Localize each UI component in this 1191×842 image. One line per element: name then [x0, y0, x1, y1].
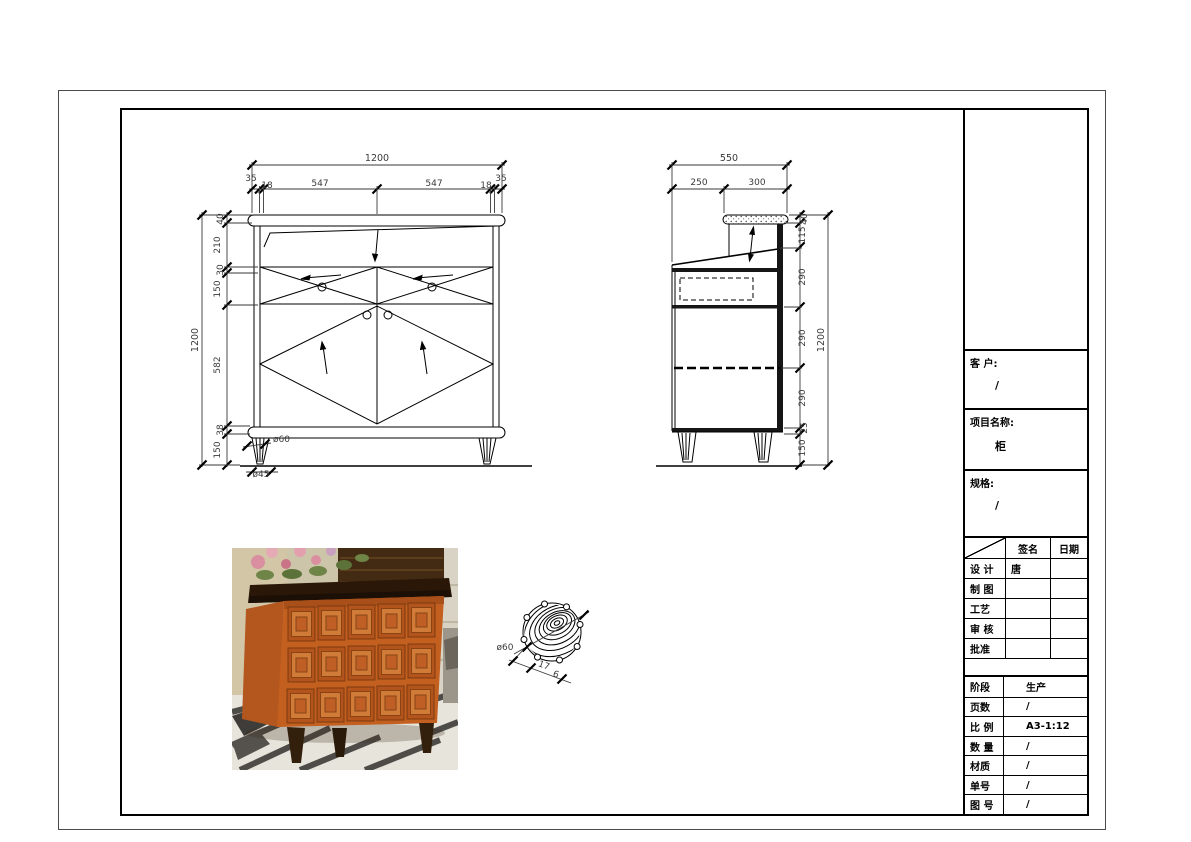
- customer-value: /: [965, 370, 1087, 392]
- dim-label: 210: [213, 236, 223, 253]
- dim-leg-top-dia: ø60: [273, 435, 290, 445]
- col-sign-header: 签名: [1005, 538, 1050, 558]
- door-arrow-right: [423, 346, 427, 374]
- row-review-sign: [1005, 618, 1050, 638]
- title-block: 客 户: / 项目名称: 柜 规格: / 签名 日期 设 计 唐 制 图 工艺 …: [963, 108, 1089, 816]
- dim-side-height: 1200: [816, 328, 827, 352]
- stage-label: 阶段: [965, 677, 1003, 697]
- row-draft-label: 制 图: [965, 578, 1005, 598]
- order-no-value: /: [1003, 775, 1089, 795]
- side-dimensions: 550 250 300 40 115 290 290 290 25 150 12…: [668, 153, 833, 470]
- dim-label: 150: [213, 441, 223, 458]
- dim-detail-dia: ø60: [497, 643, 514, 653]
- dim-label: 290: [798, 389, 808, 406]
- door-arrow-left: [323, 346, 327, 374]
- dim-label: 115: [798, 226, 808, 243]
- dim-label: 290: [798, 268, 808, 285]
- side-section: [656, 215, 802, 466]
- scale-value: A3-1:12: [1003, 716, 1089, 736]
- title-block-gap: [965, 658, 1087, 675]
- dim-label: 35: [245, 174, 256, 184]
- door-knob-left: [363, 311, 371, 319]
- dim-label: 18: [261, 181, 273, 191]
- scale-label: 比 例: [965, 716, 1003, 736]
- dim-side-depth: 550: [720, 153, 738, 164]
- row-draft-sign: [1005, 578, 1050, 598]
- quantity-label: 数 量: [965, 736, 1003, 756]
- dim-label: 6: [551, 669, 560, 680]
- row-approve-date: [1050, 638, 1087, 658]
- open-lid-line: [264, 226, 497, 247]
- drawing-no-value: /: [1003, 794, 1089, 814]
- grain-detail: ø60 17 6: [495, 573, 620, 689]
- col-date-header: 日期: [1050, 538, 1087, 558]
- material-value: /: [1003, 755, 1089, 775]
- row-craft-sign: [1005, 598, 1050, 618]
- drawing-sheet: { "title_block": { "customer": {"label":…: [0, 0, 1191, 842]
- spec-section: 规格: /: [965, 469, 1087, 536]
- dim-label: 547: [311, 179, 328, 189]
- row-approve-label: 批准: [965, 638, 1005, 658]
- drawing-no-label: 图 号: [965, 794, 1003, 814]
- hidden-drawer-box: [680, 278, 753, 300]
- pages-label: 页数: [965, 697, 1003, 717]
- dim-front-height: 1200: [190, 328, 201, 352]
- dim-label: 547: [425, 179, 442, 189]
- row-craft-label: 工艺: [965, 598, 1005, 618]
- cabinet-panels: [287, 603, 435, 723]
- row-craft-date: [1050, 598, 1087, 618]
- dim-front-width: 1200: [365, 153, 389, 164]
- door-knob-right: [384, 311, 392, 319]
- stage-value: 生产: [1003, 677, 1089, 697]
- spec-label: 规格:: [965, 471, 1087, 490]
- dim-label: 582: [213, 356, 223, 373]
- row-design-label: 设 计: [965, 558, 1005, 578]
- dim-label: 38: [216, 424, 226, 436]
- dim-label: 25: [800, 422, 810, 433]
- pages-value: /: [1003, 697, 1089, 717]
- diagonal-cell: [965, 538, 1005, 558]
- dim-label: 300: [748, 178, 765, 188]
- front-elevation: [240, 215, 532, 466]
- lid-arrow: [376, 230, 379, 258]
- row-approve-sign: [1005, 638, 1050, 658]
- dim-label: 40: [800, 213, 810, 225]
- quantity-value: /: [1003, 736, 1089, 756]
- order-no-label: 单号: [965, 775, 1003, 795]
- customer-label: 客 户:: [965, 351, 1087, 370]
- side-leg-front: [678, 432, 696, 462]
- dim-label: 40: [216, 213, 226, 225]
- front-dimensions: 1200 35 18 547 547 18 35 40 210 30 150 5…: [190, 153, 507, 480]
- dim-label: 18: [480, 181, 492, 191]
- dim-label: 250: [690, 178, 707, 188]
- row-review-label: 审 核: [965, 618, 1005, 638]
- project-value: 柜: [965, 429, 1087, 454]
- dim-label: 150: [798, 439, 808, 456]
- dim-leg-bottom-dia: ø45: [253, 470, 270, 480]
- customer-section: 客 户: /: [965, 349, 1087, 408]
- row-review-date: [1050, 618, 1087, 638]
- side-leg-back: [754, 432, 772, 462]
- material-label: 材质: [965, 755, 1003, 775]
- dim-label: 30: [216, 264, 226, 276]
- cabinet-side: [242, 601, 284, 727]
- project-section: 项目名称: 柜: [965, 408, 1087, 469]
- row-draft-date: [1050, 578, 1087, 598]
- product-photo: [232, 545, 458, 770]
- dim-label: 150: [213, 280, 223, 297]
- project-label: 项目名称:: [965, 410, 1087, 429]
- spec-value: /: [965, 490, 1087, 512]
- row-design-sign: 唐: [1005, 558, 1050, 578]
- row-design-date: [1050, 558, 1087, 578]
- title-block-empty-cell: [965, 110, 1087, 349]
- dim-label: 290: [798, 329, 808, 346]
- signature-table: 签名 日期 设 计 唐 制 图 工艺 审 核 批准: [965, 536, 1087, 658]
- info-table: 阶段 生产 页数 / 比 例 A3-1:12 数 量 / 材质 / 单号 / 图…: [965, 675, 1087, 814]
- dim-label: 35: [495, 174, 506, 184]
